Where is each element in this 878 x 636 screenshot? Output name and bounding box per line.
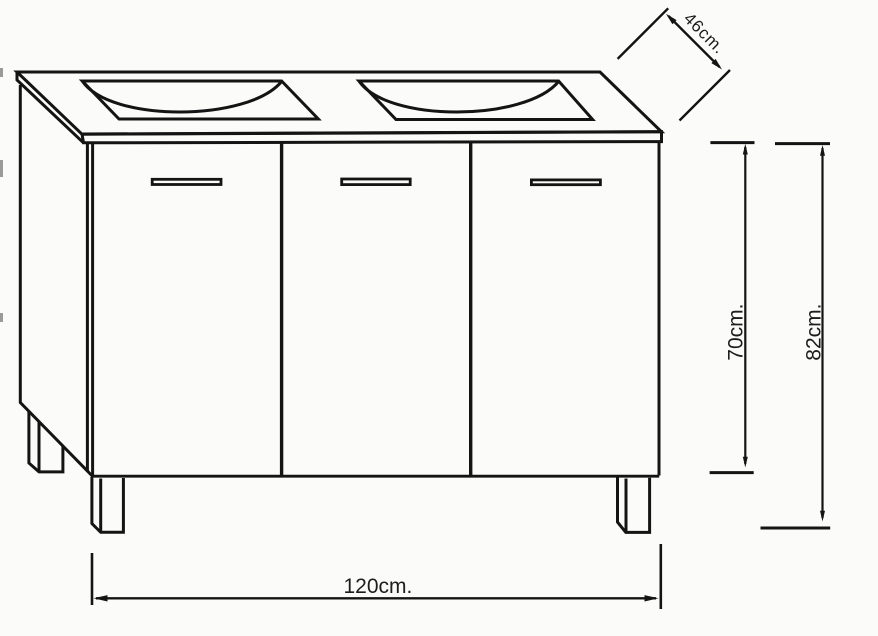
svg-text:120cm.: 120cm. [344, 575, 413, 598]
svg-text:70cm.: 70cm. [725, 304, 748, 361]
svg-text:82cm.: 82cm. [803, 304, 826, 361]
